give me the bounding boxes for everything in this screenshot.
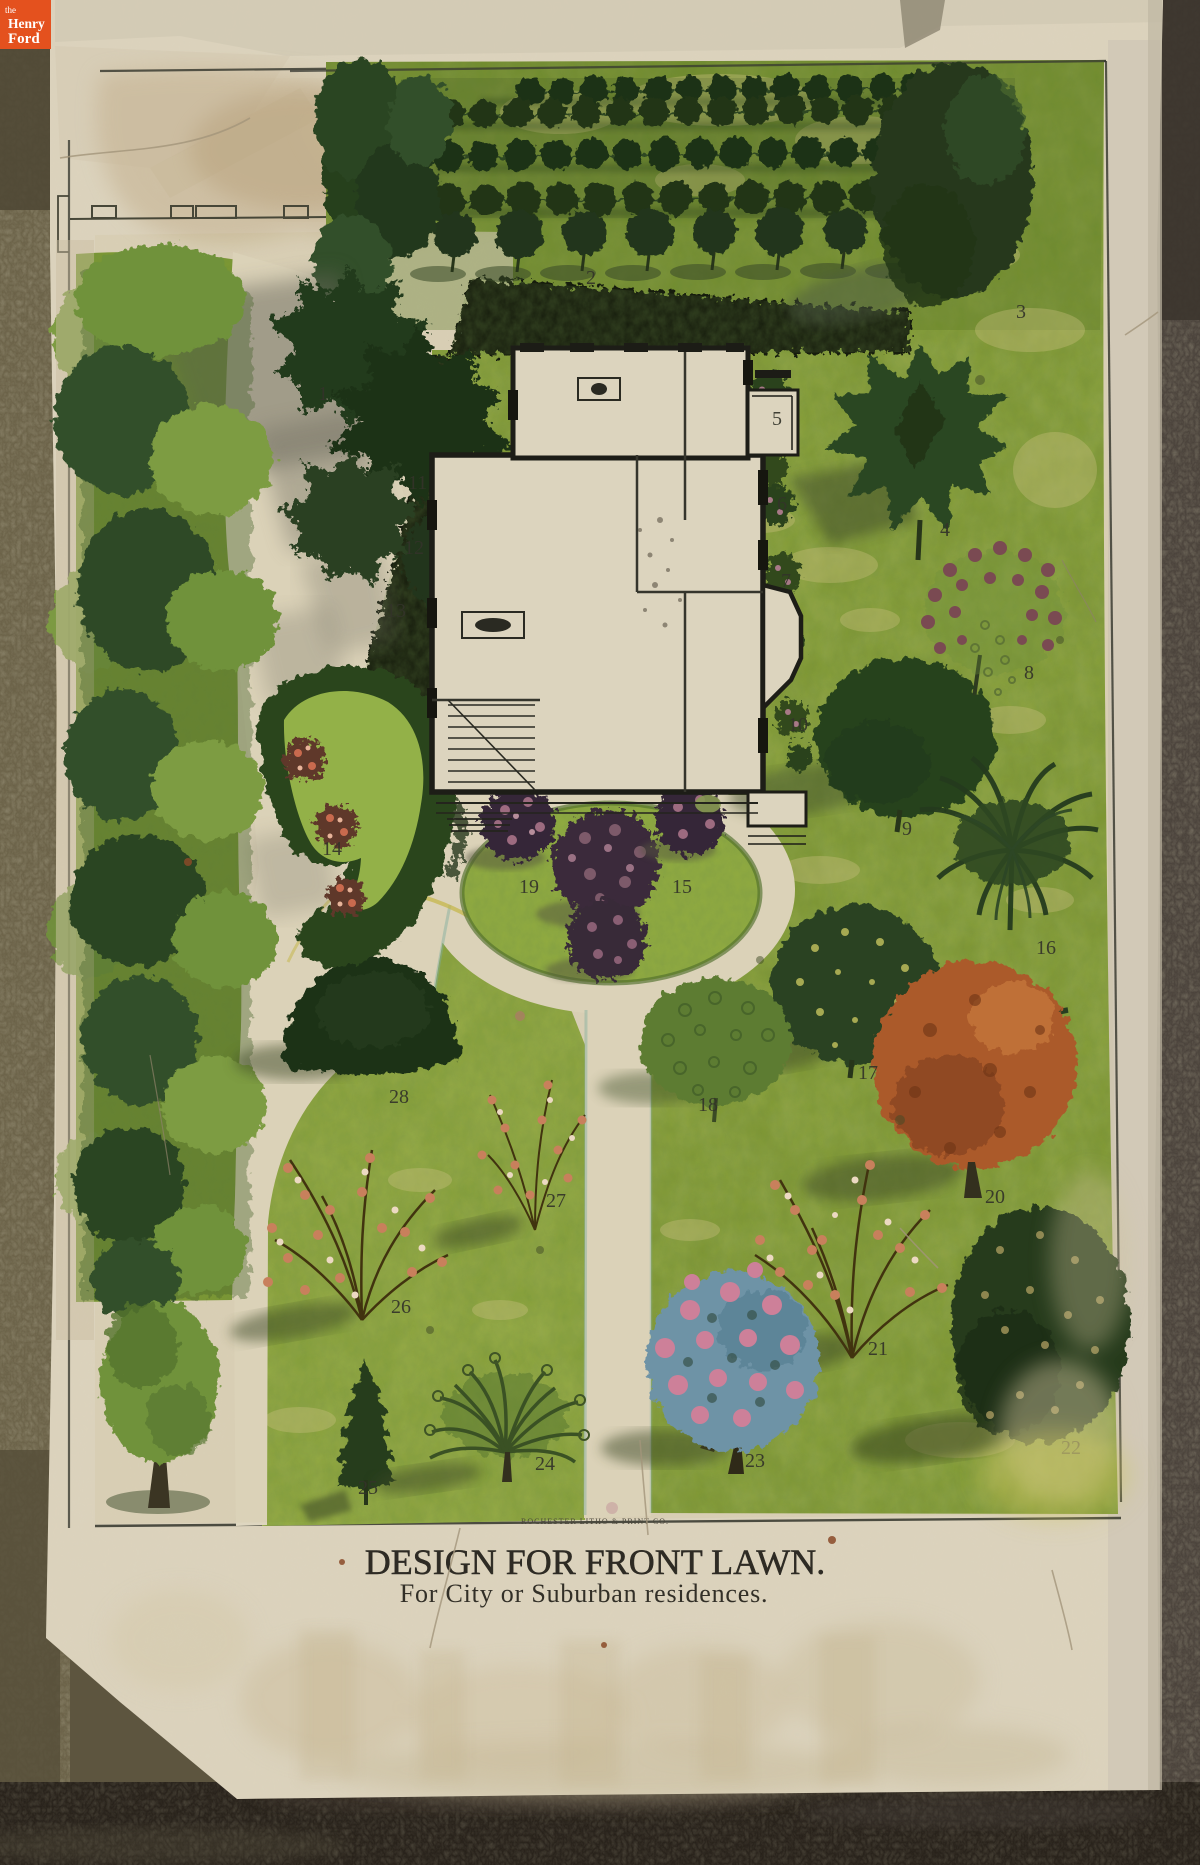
svg-text:17: 17 [858, 1062, 878, 1084]
svg-text:13: 13 [386, 600, 406, 622]
svg-text:the: the [5, 5, 16, 15]
svg-text:18: 18 [698, 1094, 718, 1116]
svg-text:1: 1 [318, 383, 328, 405]
svg-text:20: 20 [985, 1186, 1005, 1208]
svg-text:25: 25 [358, 1477, 378, 1499]
svg-text:DESIGN FOR FRONT LAWN.: DESIGN FOR FRONT LAWN. [365, 1542, 825, 1582]
svg-text:12: 12 [404, 537, 424, 559]
svg-text:21: 21 [868, 1338, 888, 1360]
svg-text:24: 24 [535, 1453, 555, 1475]
svg-text:9: 9 [902, 818, 912, 840]
svg-text:11: 11 [408, 472, 427, 494]
svg-text:2: 2 [586, 267, 596, 289]
svg-text:7: 7 [781, 570, 791, 592]
svg-text:28: 28 [389, 1086, 409, 1108]
svg-text:27: 27 [546, 1190, 566, 1212]
svg-text:5: 5 [772, 408, 782, 430]
svg-text:14: 14 [322, 838, 342, 860]
svg-text:10: 10 [788, 714, 808, 736]
svg-text:23: 23 [745, 1450, 765, 1472]
svg-text:16: 16 [1036, 937, 1056, 959]
svg-text:6: 6 [777, 493, 787, 515]
svg-text:26: 26 [391, 1296, 411, 1318]
svg-text:19: 19 [519, 876, 539, 898]
svg-text:For City or Suburban residence: For City or Suburban residences. [400, 1579, 769, 1608]
svg-text:8: 8 [1024, 662, 1034, 684]
svg-text:3: 3 [1016, 301, 1026, 323]
svg-text:4: 4 [940, 519, 950, 541]
svg-text:Henry: Henry [8, 16, 45, 31]
svg-text:Ford: Ford [8, 31, 40, 47]
svg-text:15: 15 [672, 876, 692, 898]
